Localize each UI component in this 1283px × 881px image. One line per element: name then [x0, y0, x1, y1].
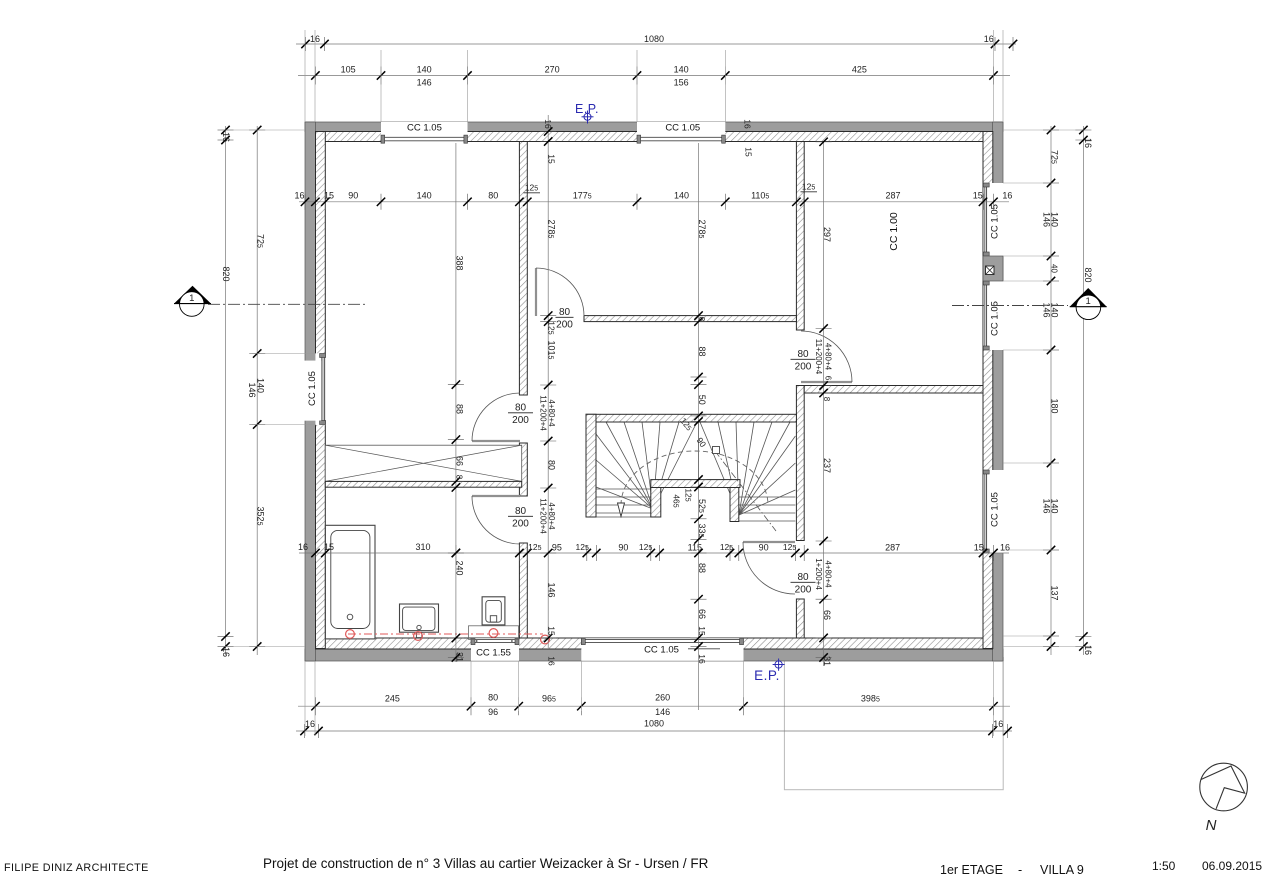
svg-text:287: 287: [885, 543, 900, 553]
svg-text:CC 1.05: CC 1.05: [665, 123, 700, 134]
svg-text:31: 31: [454, 652, 464, 662]
svg-text:146: 146: [1042, 212, 1052, 227]
svg-text:16: 16: [697, 654, 707, 664]
svg-text:15: 15: [697, 626, 707, 636]
svg-text:11+200+4: 11+200+4: [814, 339, 823, 375]
svg-text:CC 1.05: CC 1.05: [644, 644, 679, 655]
svg-text:1: 1: [189, 293, 194, 304]
svg-text:200: 200: [556, 320, 573, 331]
svg-text:CC 1.05: CC 1.05: [989, 301, 1000, 336]
svg-text:310: 310: [415, 542, 430, 552]
svg-text:16: 16: [743, 119, 753, 129]
svg-text:15: 15: [547, 154, 557, 164]
svg-text:11+200+4: 11+200+4: [538, 395, 547, 431]
svg-text:66: 66: [822, 610, 832, 620]
svg-text:820: 820: [1083, 267, 1093, 282]
svg-text:15: 15: [974, 543, 984, 553]
svg-text:4+80+4: 4+80+4: [547, 399, 556, 427]
svg-text:140: 140: [417, 65, 432, 75]
svg-text:CC 1.05: CC 1.05: [407, 123, 442, 134]
svg-text:1: 1: [1086, 296, 1091, 307]
svg-text:06.09.2015: 06.09.2015: [1202, 859, 1262, 873]
svg-text:15: 15: [324, 542, 334, 552]
svg-text:425: 425: [852, 65, 867, 75]
svg-text:297: 297: [822, 227, 832, 242]
svg-text:146: 146: [1042, 498, 1052, 513]
svg-text:8: 8: [454, 475, 463, 480]
svg-text:820: 820: [221, 266, 231, 281]
svg-text:16: 16: [305, 719, 315, 729]
svg-text:-: -: [1018, 863, 1022, 877]
svg-text:4+80+4: 4+80+4: [824, 343, 833, 371]
svg-text:15: 15: [324, 191, 334, 201]
svg-text:4+80+4: 4+80+4: [824, 560, 833, 588]
svg-text:80: 80: [547, 460, 557, 470]
svg-text:16: 16: [547, 656, 557, 666]
svg-text:1:50: 1:50: [1152, 859, 1176, 873]
svg-text:50: 50: [697, 395, 707, 405]
svg-text:15: 15: [744, 147, 754, 157]
svg-text:16: 16: [993, 719, 1003, 729]
svg-text:CC 1.55: CC 1.55: [476, 648, 511, 659]
svg-text:16: 16: [1002, 191, 1012, 201]
svg-text:15: 15: [973, 191, 983, 201]
svg-text:140: 140: [674, 65, 689, 75]
svg-text:11+200+4: 11+200+4: [538, 498, 547, 534]
svg-text:388: 388: [454, 255, 464, 270]
svg-text:200: 200: [795, 585, 812, 596]
svg-text:N: N: [1206, 817, 1217, 834]
svg-text:88: 88: [697, 563, 707, 573]
svg-text:200: 200: [512, 519, 529, 530]
svg-text:CC 1.05: CC 1.05: [307, 371, 318, 406]
svg-text:16: 16: [984, 34, 994, 44]
svg-text:6: 6: [824, 376, 833, 381]
svg-text:16: 16: [298, 542, 308, 552]
svg-text:90: 90: [618, 543, 628, 553]
svg-text:80: 80: [488, 693, 498, 703]
svg-text:80: 80: [559, 307, 571, 318]
svg-text:245: 245: [385, 694, 400, 704]
svg-text:VILLA 9: VILLA 9: [1040, 863, 1084, 877]
svg-text:31: 31: [822, 656, 832, 666]
svg-text:1080: 1080: [644, 34, 664, 44]
svg-text:140: 140: [674, 191, 689, 201]
svg-text:1080: 1080: [644, 719, 664, 729]
svg-text:200: 200: [512, 415, 529, 426]
svg-text:FILIPE DINIZ ARCHITECTE: FILIPE DINIZ ARCHITECTE: [4, 862, 149, 874]
svg-text:270: 270: [545, 65, 560, 75]
svg-text:16: 16: [221, 132, 231, 142]
svg-text:80: 80: [797, 349, 809, 360]
svg-text:146: 146: [1042, 302, 1052, 317]
svg-text:146: 146: [547, 582, 557, 597]
svg-text:1+200+4: 1+200+4: [814, 558, 823, 590]
svg-text:156: 156: [674, 78, 689, 88]
svg-text:96: 96: [488, 707, 498, 717]
svg-text:CC 1.05: CC 1.05: [989, 492, 1000, 527]
svg-text:90: 90: [348, 191, 358, 201]
svg-text:90: 90: [759, 543, 769, 553]
svg-text:8: 8: [822, 397, 831, 402]
svg-text:88: 88: [454, 404, 464, 414]
svg-text:88: 88: [697, 346, 707, 356]
svg-text:95: 95: [552, 543, 562, 553]
svg-text:146: 146: [417, 78, 432, 88]
svg-text:15: 15: [547, 626, 557, 636]
svg-text:4+80+4: 4+80+4: [547, 502, 556, 530]
svg-text:80: 80: [488, 191, 498, 201]
svg-text:260: 260: [655, 693, 670, 703]
svg-text:287: 287: [885, 191, 900, 201]
svg-text:8: 8: [697, 317, 706, 322]
svg-text:16: 16: [543, 119, 553, 129]
svg-text:1er ETAGE: 1er ETAGE: [940, 863, 1003, 877]
svg-text:105: 105: [341, 65, 356, 75]
svg-text:66: 66: [697, 609, 707, 619]
svg-text:16: 16: [1000, 543, 1010, 553]
svg-text:140: 140: [417, 191, 432, 201]
svg-text:180: 180: [1049, 398, 1059, 413]
svg-text:137: 137: [1049, 585, 1059, 600]
svg-text:CC 1.00: CC 1.00: [888, 212, 900, 251]
svg-text:66: 66: [454, 456, 464, 466]
svg-text:80: 80: [515, 403, 527, 414]
svg-text:CC 1.05: CC 1.05: [989, 204, 1000, 239]
svg-text:200: 200: [795, 362, 812, 373]
svg-text:80: 80: [515, 506, 527, 517]
svg-text:16: 16: [294, 191, 304, 201]
svg-text:146: 146: [247, 382, 257, 397]
svg-text:237: 237: [822, 458, 832, 473]
svg-text:16: 16: [221, 647, 231, 657]
svg-text:E.P.: E.P.: [754, 668, 780, 683]
svg-text:40: 40: [1049, 264, 1058, 273]
svg-text:Projet de construction de n° 3: Projet de construction de n° 3 Villas au…: [263, 856, 709, 871]
svg-text:80: 80: [797, 572, 809, 583]
svg-text:16: 16: [1083, 138, 1093, 148]
svg-text:146: 146: [655, 707, 670, 717]
